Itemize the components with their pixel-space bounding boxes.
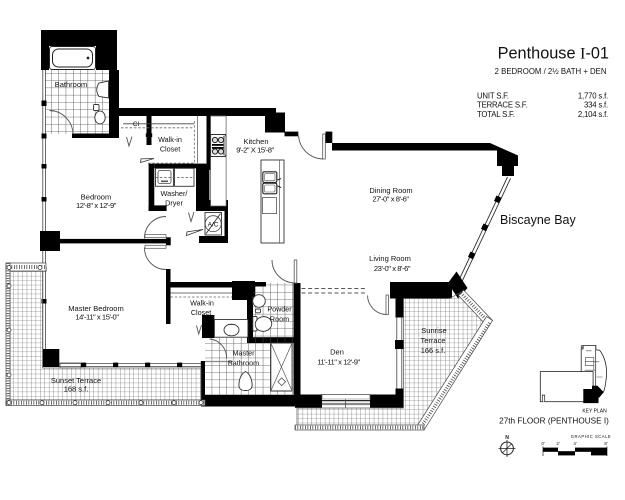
svg-text:2,104 s.f.: 2,104 s.f. bbox=[578, 110, 608, 119]
svg-text:Sunrise: Sunrise bbox=[421, 326, 446, 335]
svg-text:Washer/: Washer/ bbox=[161, 189, 189, 198]
svg-text:TERRACE S.F.: TERRACE S.F. bbox=[477, 101, 527, 110]
svg-text:12'-8" x 12'-9": 12'-8" x 12'-9" bbox=[76, 201, 117, 210]
svg-text:27th FLOOR (PENTHOUSE I): 27th FLOOR (PENTHOUSE I) bbox=[499, 417, 609, 426]
svg-text:Walk-in: Walk-in bbox=[158, 135, 182, 144]
svg-text:Biscayne Bay: Biscayne Bay bbox=[500, 213, 576, 227]
svg-text:Closet: Closet bbox=[191, 308, 211, 317]
svg-text:4': 4' bbox=[573, 441, 577, 446]
svg-text:GRAPHIC SCALE: GRAPHIC SCALE bbox=[571, 434, 611, 439]
svg-text:Den: Den bbox=[330, 348, 344, 357]
svg-text:14'-11" x 15'-0": 14'-11" x 15'-0" bbox=[75, 313, 119, 322]
svg-text:Bathroom: Bathroom bbox=[55, 80, 88, 89]
svg-text:8': 8' bbox=[604, 441, 608, 446]
svg-text:11'-11" x 12'-9": 11'-11" x 12'-9" bbox=[317, 358, 360, 367]
svg-text:Closet: Closet bbox=[160, 145, 180, 154]
svg-text:2 BEDROOM / 2½ BATH + DEN: 2 BEDROOM / 2½ BATH + DEN bbox=[495, 67, 607, 76]
svg-text:27'-0" x 8'-6": 27'-0" x 8'-6" bbox=[372, 195, 409, 204]
svg-text:1,770 s.f.: 1,770 s.f. bbox=[578, 92, 608, 101]
svg-text:Room: Room bbox=[270, 315, 289, 324]
svg-text:Penthouse I-01: Penthouse I-01 bbox=[498, 44, 609, 63]
svg-text:Walk-in: Walk-in bbox=[190, 299, 214, 308]
svg-text:UNIT S.F.: UNIT S.F. bbox=[477, 92, 509, 101]
svg-text:N: N bbox=[505, 435, 509, 441]
svg-text:166 s.f.: 166 s.f. bbox=[421, 346, 446, 355]
svg-text:Cl: Cl bbox=[133, 121, 140, 128]
svg-text:Dryer: Dryer bbox=[165, 199, 183, 208]
svg-text:9'-2" X 15'-8": 9'-2" X 15'-8" bbox=[236, 146, 274, 155]
svg-text:2': 2' bbox=[556, 441, 560, 446]
svg-text:23'-0" x 8'-6": 23'-0" x 8'-6" bbox=[374, 264, 411, 273]
svg-text:Master: Master bbox=[233, 349, 256, 358]
svg-text:KEY PLAN: KEY PLAN bbox=[582, 409, 607, 415]
svg-text:168 s.f.: 168 s.f. bbox=[64, 385, 89, 394]
svg-text:TOTAL S.F.: TOTAL S.F. bbox=[477, 110, 515, 119]
svg-text:A/C: A/C bbox=[208, 222, 219, 229]
svg-text:Bathroom: Bathroom bbox=[228, 359, 259, 368]
svg-text:334 s.f.: 334 s.f. bbox=[584, 101, 608, 110]
svg-text:0': 0' bbox=[541, 441, 545, 446]
svg-text:Powder: Powder bbox=[267, 305, 292, 314]
svg-text:Living Room: Living Room bbox=[369, 254, 411, 263]
svg-text:Terrace: Terrace bbox=[420, 336, 445, 345]
